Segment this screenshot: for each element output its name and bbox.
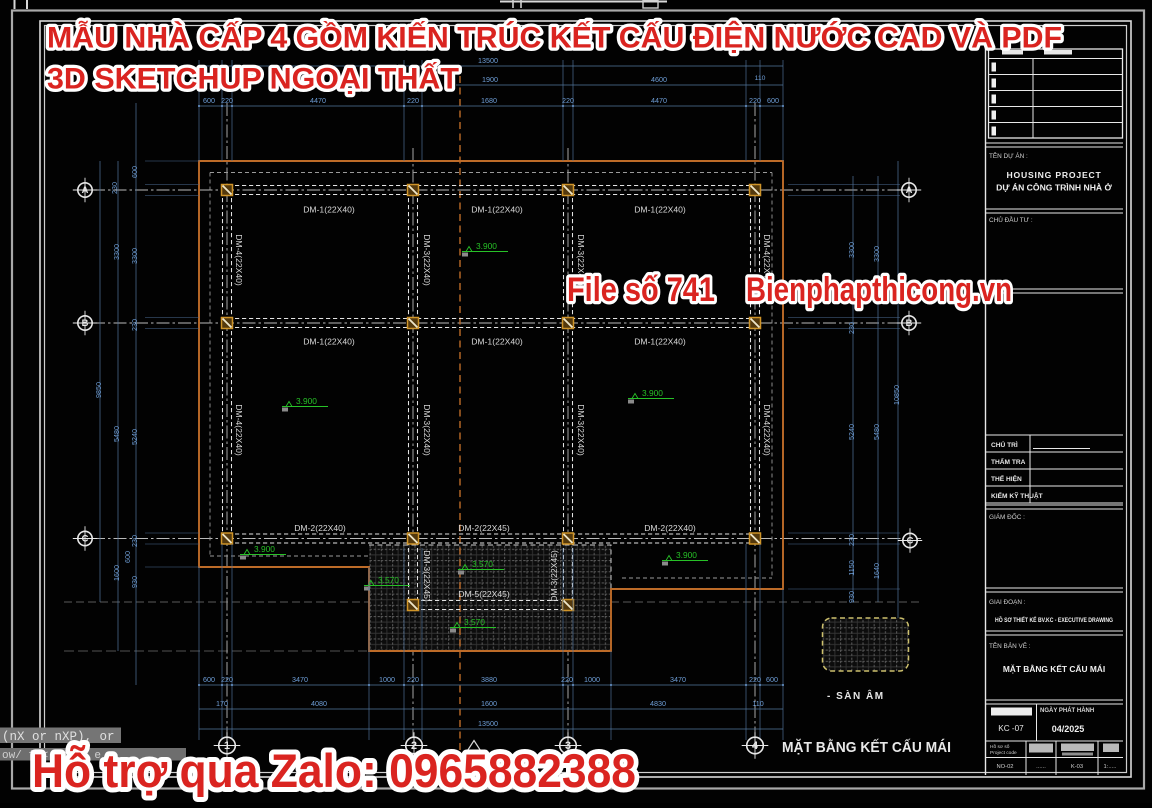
svg-text:DM-4(22X40): DM-4(22X40) — [234, 234, 244, 286]
svg-text:1:.....: 1:..... — [1104, 764, 1117, 770]
svg-text:DM-5(22X45): DM-5(22X45) — [458, 589, 510, 599]
svg-text:DM-1(22X40): DM-1(22X40) — [634, 337, 686, 347]
svg-text:600: 600 — [130, 166, 139, 178]
svg-text:GIAI ĐOẠN :: GIAI ĐOẠN : — [989, 599, 1026, 606]
svg-text:10850: 10850 — [892, 385, 901, 405]
svg-text:Bienphapthicong.vn: Bienphapthicong.vn — [746, 271, 1012, 309]
svg-text:9850: 9850 — [94, 382, 103, 398]
svg-text:THẨM TRA: THẨM TRA — [991, 457, 1026, 466]
svg-text:DM-1(22X40): DM-1(22X40) — [471, 205, 523, 215]
svg-text:3300: 3300 — [130, 248, 139, 264]
svg-text:600: 600 — [123, 551, 132, 563]
svg-text:HỒ SƠ THIẾT KẾ BV.KC - EXECUTI: HỒ SƠ THIẾT KẾ BV.KC - EXECUTIVE DRAWING — [995, 617, 1113, 624]
svg-text:KIỂM KỸ THUẬT: KIỂM KỸ THUẬT — [991, 491, 1043, 500]
svg-text:DM-1(22X40): DM-1(22X40) — [471, 337, 523, 347]
svg-text:4470: 4470 — [310, 96, 326, 105]
svg-text:DM-1(22X40): DM-1(22X40) — [303, 337, 355, 347]
svg-text:3.900: 3.900 — [676, 550, 697, 560]
svg-text:220: 220 — [749, 96, 761, 105]
svg-text:NGÀY PHÁT HÀNH: NGÀY PHÁT HÀNH — [1040, 707, 1094, 714]
svg-text:5480: 5480 — [872, 424, 881, 440]
svg-text:4600: 4600 — [651, 75, 667, 84]
svg-text:3300: 3300 — [872, 246, 881, 262]
svg-text:3.570: 3.570 — [464, 617, 485, 627]
svg-text:220: 220 — [561, 675, 573, 684]
svg-text:......: ...... — [1036, 764, 1046, 770]
svg-text:DM-3(22X40): DM-3(22X40) — [422, 404, 432, 456]
svg-text:- SÀN ÂM: - SÀN ÂM — [827, 689, 885, 702]
svg-text:3.570: 3.570 — [378, 575, 399, 585]
svg-text:3300: 3300 — [847, 242, 856, 258]
svg-text:CHỦ TRÌ: CHỦ TRÌ — [991, 440, 1018, 449]
svg-text:4830: 4830 — [650, 699, 666, 708]
svg-text:B: B — [82, 318, 89, 328]
svg-text:170: 170 — [216, 699, 228, 708]
svg-text:TÊN DỰ ÁN :: TÊN DỰ ÁN : — [989, 151, 1028, 160]
svg-text:220: 220 — [407, 675, 419, 684]
svg-text:C: C — [82, 534, 89, 544]
svg-text:3880: 3880 — [481, 675, 497, 684]
svg-text:1150: 1150 — [847, 560, 856, 575]
svg-text:5480: 5480 — [112, 426, 121, 442]
svg-text:DỰ ÁN CÔNG TRÌNH NHÀ Ở: DỰ ÁN CÔNG TRÌNH NHÀ Ở — [996, 182, 1112, 193]
svg-text:3.900: 3.900 — [254, 544, 275, 554]
svg-text:220: 220 — [221, 96, 233, 105]
svg-text:HOUSING PROJECT: HOUSING PROJECT — [1006, 170, 1101, 180]
svg-text:04/2025: 04/2025 — [1052, 724, 1085, 734]
svg-text:4: 4 — [752, 740, 758, 752]
svg-text:1900: 1900 — [482, 75, 498, 84]
svg-text:Hồ sơ số: Hồ sơ số — [990, 744, 1010, 750]
svg-text:File số 741: File số 741 — [567, 271, 715, 309]
svg-text:220: 220 — [407, 96, 419, 105]
svg-text:5240: 5240 — [130, 429, 139, 445]
svg-text:220: 220 — [749, 675, 761, 684]
svg-text:110: 110 — [752, 699, 763, 708]
svg-text:DM-1(22X40): DM-1(22X40) — [303, 205, 355, 215]
svg-text:1600: 1600 — [112, 565, 121, 581]
svg-text:4470: 4470 — [651, 96, 667, 105]
svg-text:1000: 1000 — [379, 675, 395, 684]
svg-text:Project code: Project code — [990, 750, 1017, 756]
svg-text:230: 230 — [110, 182, 119, 194]
svg-text:5240: 5240 — [847, 424, 856, 440]
svg-text:600: 600 — [767, 96, 779, 105]
svg-text:13500: 13500 — [478, 56, 498, 65]
svg-text:KC -07: KC -07 — [998, 724, 1024, 733]
svg-text:930: 930 — [847, 591, 856, 603]
svg-text:3.570: 3.570 — [472, 559, 493, 569]
svg-text:NO-02: NO-02 — [996, 764, 1013, 770]
svg-text:1640: 1640 — [872, 563, 881, 579]
svg-text:K-03: K-03 — [1071, 764, 1083, 770]
svg-text:220: 220 — [562, 96, 574, 105]
svg-text:600: 600 — [203, 96, 215, 105]
svg-text:DM-2(22X40): DM-2(22X40) — [294, 523, 346, 533]
svg-text:600: 600 — [203, 675, 215, 684]
svg-text:THỂ HIỆN: THỂ HIỆN — [991, 474, 1022, 483]
svg-text:B: B — [906, 318, 913, 328]
svg-text:MẶT BẰNG KẾT CẤU MÁI: MẶT BẰNG KẾT CẤU MÁI — [782, 738, 951, 756]
svg-text:DM-3(22X40): DM-3(22X40) — [576, 404, 586, 456]
svg-text:MẪU NHÀ CẤP 4 GỒM KIẾN TRÚC KẾ: MẪU NHÀ CẤP 4 GỒM KIẾN TRÚC KẾT CẤU ĐIỆN… — [47, 21, 1062, 55]
svg-text:DM-2(22X45): DM-2(22X45) — [458, 523, 510, 533]
svg-text:3.900: 3.900 — [476, 241, 497, 251]
svg-text:3D SKETCHUP NGOẠI THẤT: 3D SKETCHUP NGOẠI THẤT — [47, 62, 459, 96]
svg-text:C: C — [907, 536, 914, 546]
svg-text:DM-1(22X40): DM-1(22X40) — [634, 205, 686, 215]
svg-text:MẶT BẰNG KẾT CẤU MÁI: MẶT BẰNG KẾT CẤU MÁI — [1003, 663, 1105, 674]
svg-text:1600: 1600 — [481, 699, 497, 708]
svg-text:DM-2(22X40): DM-2(22X40) — [644, 523, 696, 533]
svg-text:230: 230 — [847, 322, 856, 334]
svg-text:TÊN BẢN VẼ :: TÊN BẢN VẼ : — [989, 641, 1031, 650]
svg-text:110: 110 — [755, 75, 766, 82]
svg-text:930: 930 — [130, 576, 139, 588]
svg-text:A: A — [82, 185, 89, 195]
svg-text:13500: 13500 — [478, 719, 498, 728]
svg-text:600: 600 — [766, 675, 778, 684]
svg-text:DM-3(22X40): DM-3(22X40) — [422, 234, 432, 286]
svg-text:220: 220 — [221, 675, 233, 684]
svg-text:DM-4(22X40): DM-4(22X40) — [234, 404, 244, 456]
svg-text:3470: 3470 — [292, 675, 308, 684]
svg-text:4080: 4080 — [311, 699, 327, 708]
svg-text:3470: 3470 — [670, 675, 686, 684]
svg-text:230: 230 — [130, 319, 139, 331]
svg-text:DM-4(22X40): DM-4(22X40) — [762, 404, 772, 456]
svg-text:1680: 1680 — [481, 96, 497, 105]
svg-text:3.900: 3.900 — [296, 396, 317, 406]
svg-text:3300: 3300 — [112, 244, 121, 260]
svg-text:1000: 1000 — [584, 675, 600, 684]
svg-text:230: 230 — [130, 535, 139, 547]
svg-text:(nX or nXP), or: (nX or nXP), or — [2, 730, 115, 744]
svg-text:3.900: 3.900 — [642, 388, 663, 398]
svg-text:DM-3(22X45): DM-3(22X45) — [549, 550, 559, 602]
svg-text:DM-3(22X45): DM-3(22X45) — [422, 550, 432, 602]
svg-text:Hỗ trợ qua Zalo: 0965882388: Hỗ trợ qua Zalo: 0965882388 — [32, 744, 636, 797]
svg-text:A: A — [906, 185, 913, 195]
